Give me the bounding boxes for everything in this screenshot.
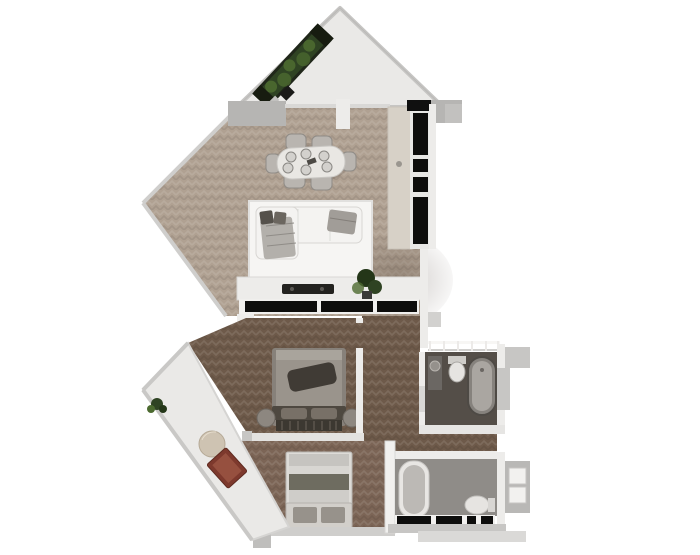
ac-unit-vent [509,487,526,503]
plate [319,151,329,161]
railing-post [485,341,487,351]
bedroom-divider-wall [248,433,364,441]
living-zone [249,201,372,289]
floorplan-render [0,0,700,555]
window-sill [350,104,390,108]
railing-post [443,341,445,351]
bed2-duvet-fold [289,454,349,466]
sofa-pillow-dark [259,210,274,225]
plate [301,149,311,159]
soundbar [282,284,334,294]
console-black-panel [321,301,373,312]
bed2-pillow [321,507,345,523]
plate [283,163,293,173]
sofa-pillow-dark [273,211,286,224]
railing-post [471,341,473,351]
exterior-apron [418,531,526,542]
bed1-pillow [281,408,307,419]
bathroom1-door [419,386,425,412]
kitchen-unit [388,100,436,249]
black-window [397,516,431,524]
wall-vent [428,312,441,327]
exterior-ledge-h [505,347,530,368]
soundbar-knob [320,287,324,291]
black-window [481,516,493,524]
toilet [465,496,489,514]
console-black-panel [377,301,417,312]
tub-drain [480,368,484,372]
exterior-ledge-v [497,368,510,410]
toilet-tank [488,498,495,512]
vanity-sink [430,361,440,371]
plant-pot [362,291,372,299]
plate [301,165,311,175]
bed1-bench [276,420,342,431]
toilet [449,362,465,382]
right-wall [429,104,436,249]
cabinet-black-panel [413,177,428,192]
right-wall-lower [420,249,428,348]
bed2-sheet [289,490,349,503]
bathroom2-right-wall [497,452,505,524]
railing-top [428,341,500,344]
hall-wall-stub [356,318,363,323]
railing-post [429,341,431,351]
bathtub2-inner [403,465,425,514]
soundbar-knob [290,287,294,291]
plate [322,162,332,172]
plate [286,152,296,162]
kitchen-sink [396,161,402,167]
console-black-panel [245,301,317,312]
cabinet-black-panel [413,197,428,244]
cabinet-top-band [407,100,431,111]
hall-wall [356,348,363,433]
bathroom2-top-wall [388,451,497,459]
cabinet-black-panel [413,159,428,172]
railing-post [457,341,459,351]
bed1-pillow [311,408,337,419]
bed2-pillow [293,507,317,523]
bathrooms-divider-wall [419,425,505,434]
ac-unit-vent [509,468,526,484]
railing-bottom [428,349,500,351]
bed-2 [286,452,352,528]
cabinet-black-panel [413,113,428,155]
black-window [467,516,476,524]
wall-pier [336,99,350,129]
black-window [436,516,462,524]
bed-1 [257,348,361,431]
ac-unit-exterior [505,461,530,513]
bed1-duvet-fold [276,350,342,360]
foliage [159,405,167,413]
roof-ledge-step [445,104,462,123]
foliage [147,405,155,413]
wall-block [228,101,286,126]
bathroom2-left-wall [385,441,395,533]
balcony-door-sill [285,104,337,108]
bed2-band [289,474,349,490]
kitchen-counter [388,107,412,249]
floorplan-svg [0,0,700,555]
nightstand [257,409,275,427]
